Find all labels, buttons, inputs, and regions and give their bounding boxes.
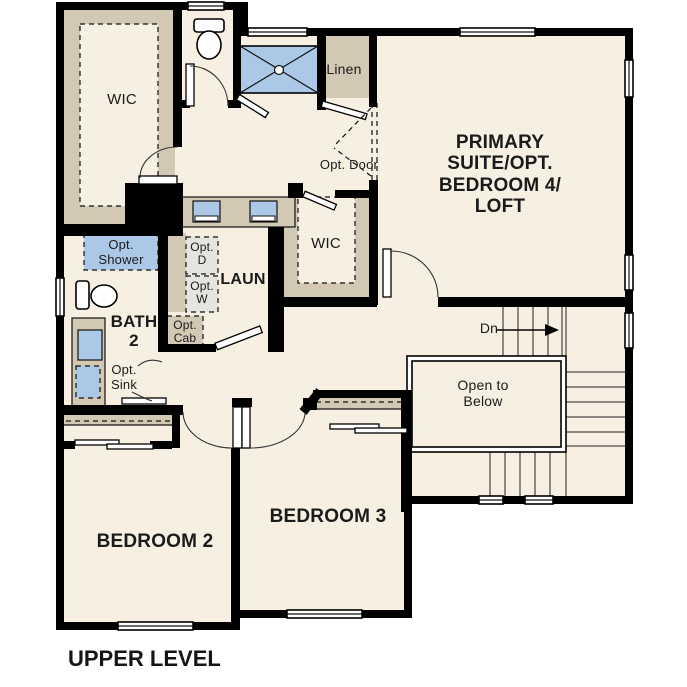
room-label-wic2: WIC bbox=[296, 236, 356, 253]
annotation-opt-shower: Opt. Shower bbox=[86, 238, 156, 267]
room-label-primary-suite: PRIMARY SUITE/OPT. BEDROOM 4/ LOFT bbox=[437, 132, 563, 217]
shower-tub bbox=[240, 46, 318, 93]
room-label-bedroom3: BEDROOM 3 bbox=[268, 506, 388, 527]
room-label-wic1: WIC bbox=[92, 92, 152, 109]
annotation-opt-cab: Opt. Cab bbox=[168, 319, 202, 346]
plan-title: UPPER LEVEL bbox=[68, 646, 221, 672]
room-label-bedroom2: BEDROOM 2 bbox=[95, 531, 215, 552]
annotation-opt-dryer: Opt. D bbox=[185, 241, 219, 268]
annotation-opt-door: Opt. Door bbox=[319, 158, 379, 173]
toilet-top bbox=[194, 19, 224, 59]
annotation-open-to-below: Open to Below bbox=[453, 378, 513, 409]
room-label-laundry: LAUN bbox=[213, 271, 273, 289]
room-label-bath2: BATH 2 bbox=[104, 312, 164, 350]
annotation-stairs-down: Dn bbox=[474, 321, 504, 337]
floor-plan: WIC Linen PRIMARY SUITE/OPT. BEDROOM 4/ … bbox=[0, 0, 687, 687]
room-label-linen: Linen bbox=[314, 62, 374, 78]
annotation-opt-sink: Opt. Sink bbox=[107, 363, 141, 392]
